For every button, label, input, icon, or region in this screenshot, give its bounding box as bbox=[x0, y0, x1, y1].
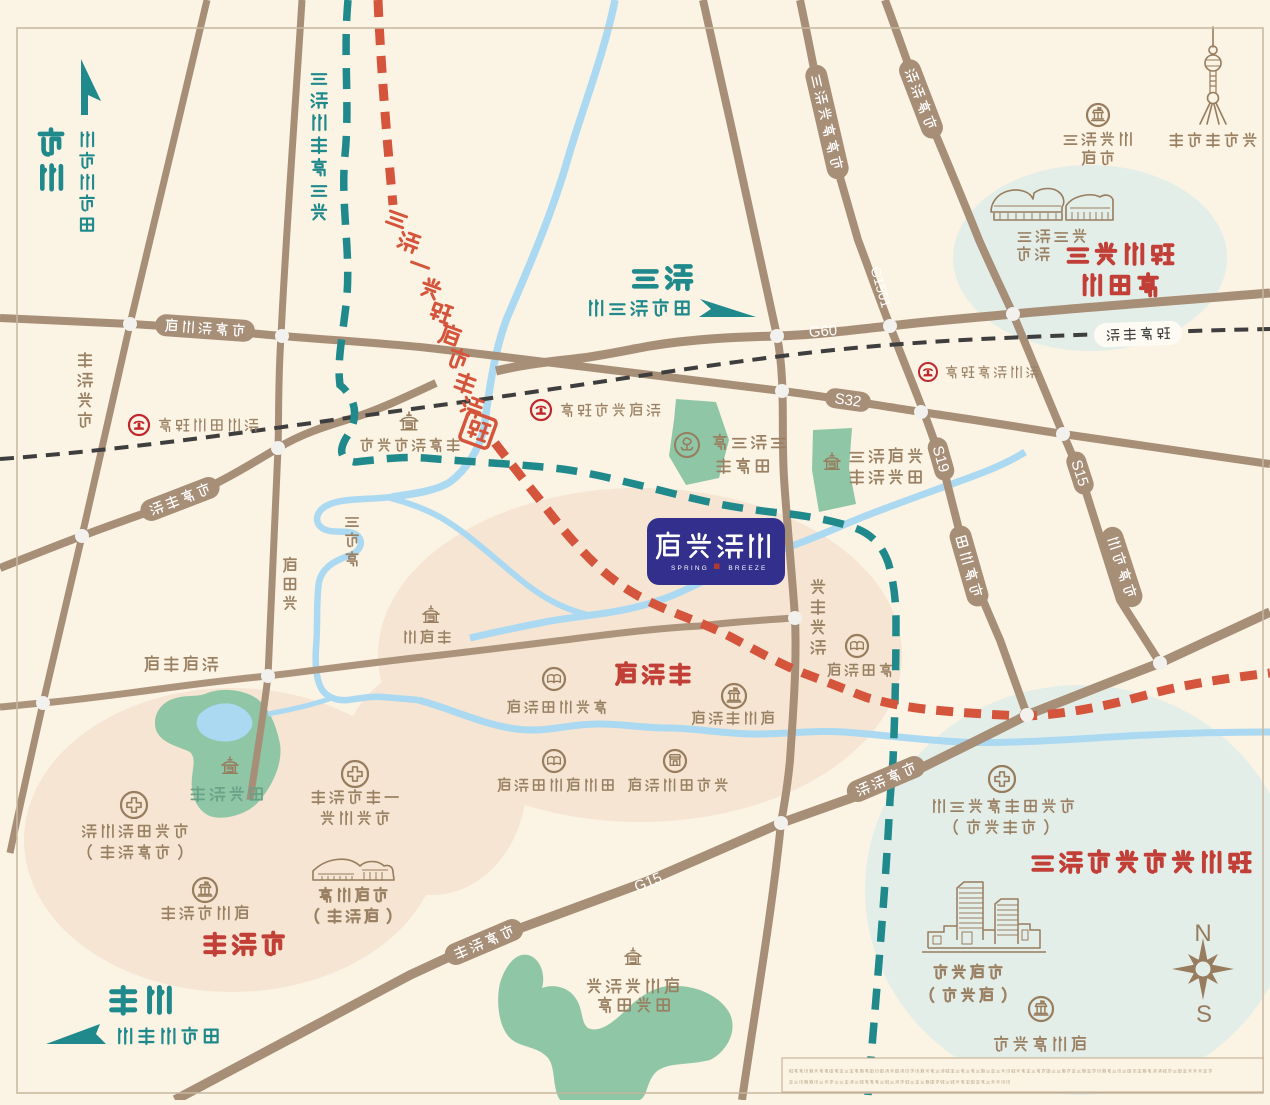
svg-text:G60: G60 bbox=[808, 322, 837, 341]
svg-text:SPRING: SPRING bbox=[671, 565, 709, 572]
svg-text:S: S bbox=[1196, 1001, 1212, 1028]
svg-text:BREEZE: BREEZE bbox=[728, 565, 767, 572]
svg-text:N: N bbox=[1194, 920, 1211, 947]
